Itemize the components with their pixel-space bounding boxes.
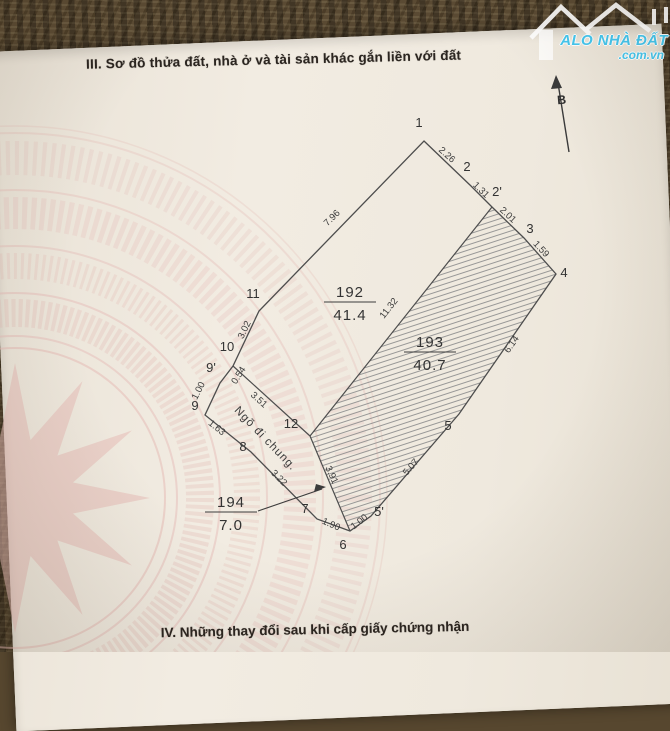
vertex-label: 2'	[492, 184, 502, 199]
logo-brand-text: ALO NHÀ ĐẤT	[556, 32, 668, 49]
vertex-label: 5'	[374, 504, 384, 519]
edge-length-label: 2.26	[436, 145, 457, 166]
north-label: B	[557, 93, 567, 108]
survey-diagram-svg: B122'3455'67899'1011122.261.312.011.596.…	[0, 0, 670, 652]
vertex-label: 10	[220, 339, 234, 354]
drum-star	[0, 363, 150, 633]
edge-length-label: 1.31	[470, 180, 491, 201]
parcel-number: 193	[416, 334, 444, 351]
vertex-label: 8	[239, 439, 246, 454]
north-arrow-head-icon	[551, 75, 562, 89]
vertex-label: 9'	[206, 360, 216, 375]
parcel-area: 7.0	[219, 517, 243, 534]
vertex-label: 2	[463, 159, 470, 174]
vertex-label: 7	[301, 501, 308, 516]
vertex-label: 3	[526, 221, 533, 236]
cadastral-plot-diagram: B122'3455'67899'1011122.261.312.011.596.…	[190, 75, 569, 552]
leader-arrow-head-icon	[314, 484, 326, 492]
vertex-label: 11	[246, 286, 260, 301]
vertex-label: 12	[284, 416, 298, 431]
parcel-number: 192	[336, 284, 364, 301]
vertex-label: 5	[444, 418, 451, 433]
parcel-area: 40.7	[413, 357, 446, 374]
parcel-number: 194	[217, 494, 245, 511]
vertex-label: 4	[560, 265, 567, 280]
vertex-label: 1	[415, 115, 422, 130]
edge-length-label: 7.96	[322, 208, 343, 229]
vertex-label: 6	[339, 537, 346, 552]
edge-length-label: 11.32	[378, 296, 401, 321]
parcel-area: 41.4	[333, 307, 366, 324]
logo-domain-text: .com.vn	[556, 48, 664, 62]
